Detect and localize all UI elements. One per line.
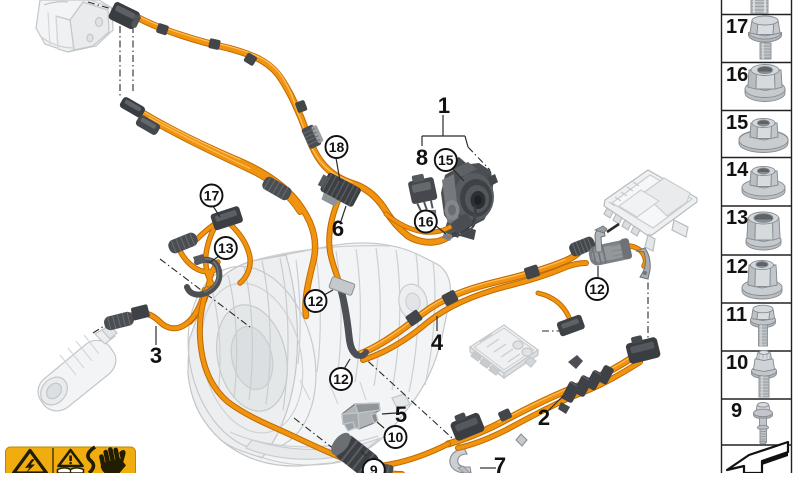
svg-text:16: 16 bbox=[726, 64, 748, 86]
svg-text:10: 10 bbox=[726, 352, 748, 374]
svg-text:12: 12 bbox=[589, 281, 605, 297]
svg-text:17: 17 bbox=[204, 188, 220, 204]
svg-text:8: 8 bbox=[416, 145, 428, 170]
svg-text:2: 2 bbox=[538, 405, 550, 430]
svg-text:11: 11 bbox=[726, 304, 747, 326]
svg-text:14: 14 bbox=[726, 159, 749, 181]
svg-text:4: 4 bbox=[431, 330, 444, 355]
svg-text:15: 15 bbox=[726, 112, 748, 134]
svg-text:5: 5 bbox=[395, 402, 407, 427]
svg-text:13: 13 bbox=[218, 240, 234, 256]
svg-text:16: 16 bbox=[418, 214, 434, 230]
svg-text:18: 18 bbox=[329, 139, 345, 155]
svg-text:3: 3 bbox=[150, 343, 162, 368]
svg-text:12: 12 bbox=[308, 293, 324, 309]
svg-text:10: 10 bbox=[388, 429, 404, 445]
svg-text:12: 12 bbox=[726, 256, 748, 278]
svg-text:15: 15 bbox=[438, 152, 454, 168]
svg-text:7: 7 bbox=[494, 453, 506, 473]
svg-text:9: 9 bbox=[731, 400, 742, 422]
svg-text:12: 12 bbox=[333, 371, 349, 387]
svg-text:1: 1 bbox=[438, 93, 450, 118]
svg-text:9: 9 bbox=[370, 462, 378, 473]
svg-text:17: 17 bbox=[726, 16, 748, 38]
svg-text:13: 13 bbox=[726, 207, 748, 229]
svg-text:6: 6 bbox=[332, 216, 344, 241]
